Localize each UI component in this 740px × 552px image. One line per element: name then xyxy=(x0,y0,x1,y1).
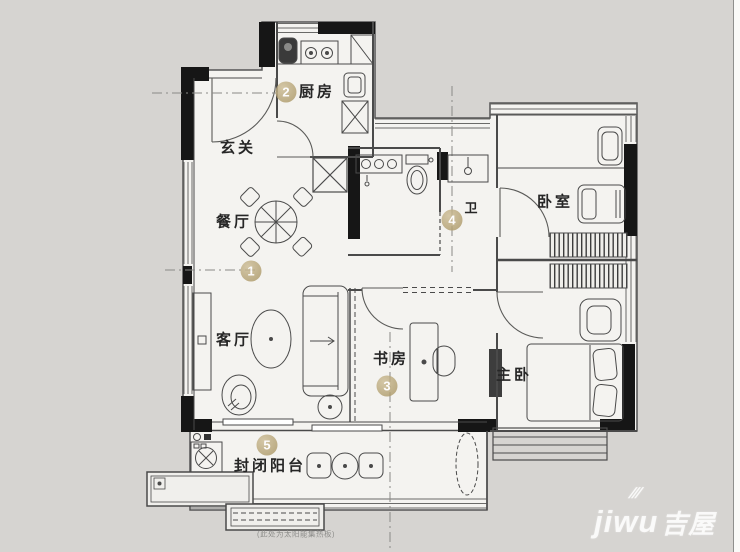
room-label-dining: 餐厅 xyxy=(216,215,252,230)
wardrobe xyxy=(550,264,627,288)
watermark-brand: jiwu xyxy=(594,504,658,540)
right-edge-strip xyxy=(734,0,740,552)
shaft xyxy=(313,158,347,192)
room-label-study: 书房 xyxy=(373,352,409,367)
floorplan-image: 玄关 厨房 餐厅 客厅 卫 卧室 书房 主卧 封闭阳台 1 2 3 4 5 (此… xyxy=(0,0,740,552)
room-label-living: 客厅 xyxy=(216,333,252,348)
solar-note: (此处为太阳能集热板) xyxy=(257,529,335,540)
wardrobe xyxy=(550,233,627,257)
marker-2: 2 xyxy=(276,82,297,103)
marker-1: 1 xyxy=(241,261,262,282)
jiwu-watermark: /// jiwu 吉屋 xyxy=(594,496,734,548)
floorplan-drawing xyxy=(0,0,740,552)
room-label-master: 主卧 xyxy=(496,368,532,383)
room-label-bedroom: 卧室 xyxy=(537,195,573,210)
room-label-foyer: 玄关 xyxy=(220,141,256,156)
marker-3: 3 xyxy=(377,376,398,397)
marker-4: 4 xyxy=(442,210,463,231)
room-label-kitchen: 厨房 xyxy=(299,85,335,100)
watermark-brand-cn: 吉屋 xyxy=(661,504,715,541)
room-label-balcony: 封闭阳台 xyxy=(234,459,306,474)
marker-5: 5 xyxy=(257,435,278,456)
room-label-bath: 卫 xyxy=(464,202,477,215)
